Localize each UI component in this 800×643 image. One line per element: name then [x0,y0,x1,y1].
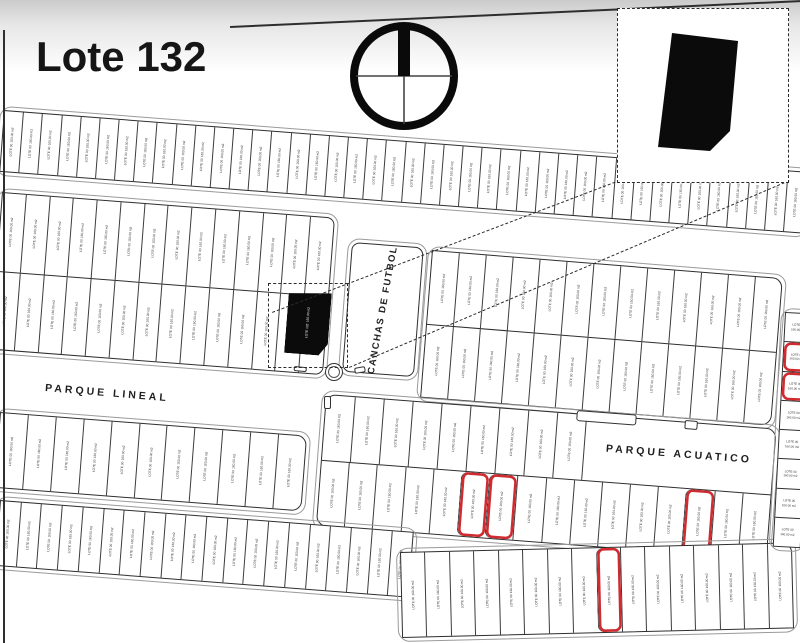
lot-number: LOTE 00 [63,457,71,470]
lot-area: 160.00 m2 [434,580,441,595]
lot-label: LOTE 00160.00 m2 [753,184,762,213]
lot-number: LOTE 00 [565,447,573,460]
lot-label: LOTE 00160.00 m2 [756,373,765,402]
lot-row: LOTE 00160.00 m2 [783,341,800,372]
lot-number: LOTE 00 [7,452,15,465]
lot-area: 160.00 m2 [695,507,703,523]
lot-area: 160.00 m2 [514,353,522,369]
lot-label: LOTE 00160.00 m2 [761,300,770,329]
lot-area: 160.00 m2 [232,537,240,553]
lot-label: LOTE 00160.00 m2 [438,274,447,303]
lot-area: 160.00 m2 [566,431,574,447]
lot-number: LOTE 00 [648,380,656,393]
lot-area: 160.00 m2 [46,522,54,538]
lot-label: LOTE 00160.00 m2 [780,527,795,537]
lot-label: LOTE 00160.00 m2 [728,572,735,601]
lot-area: 160.00 m2 [8,127,16,143]
lot-label: LOTE 00160.00 m2 [66,524,75,553]
lot-area: 160.00 m2 [557,577,564,592]
lot-area: 160.00 m2 [191,533,199,549]
lot-area: 160.00 m2 [66,131,74,147]
highlighted-lot[interactable]: LOTE 00160.00 m2 [781,371,800,401]
lot-area: 160.00 m2 [67,524,75,540]
lot-number: LOTE 00 [679,590,686,603]
lot-number: LOTE 00 [202,467,210,480]
lot-label: LOTE 00160.00 m2 [536,429,545,458]
lot-area: 160.00 m2 [574,284,582,300]
lot-label: LOTE 00160.00 m2 [128,529,137,558]
lot-number: LOTE 00 [627,305,635,318]
lot-number: LOTE 00 [676,195,684,208]
lot-label: LOTE 00160.00 m2 [390,156,399,185]
lot-number: LOTE 00 [272,556,280,569]
lot-label: LOTE 00160.00 m2 [409,158,418,187]
lot-label: LOTE 00160.00 m2 [791,323,800,333]
highlighted-lot[interactable]: LOTE 00160.00 m2 [485,473,518,539]
lot-area: 160.00 m2 [780,532,794,538]
lot-number: LOTE 00 [654,307,662,320]
lot-label: LOTE 00160.00 m2 [542,168,551,197]
lot-label: LOTE 00160.00 m2 [421,420,430,449]
lot-area: 160.00 m2 [622,362,630,378]
lot-area: 160.00 m2 [451,423,459,439]
lot-number: LOTE 00 [313,559,321,572]
lot-number: LOTE 00 [702,385,710,398]
lot-area: 160.00 m2 [682,293,690,309]
lot-number: LOTE 00 [275,164,283,177]
lot-number: LOTE 00 [459,365,467,378]
lot-label: LOTE 00160.00 m2 [621,362,630,391]
lot-area: 160.00 m2 [655,291,663,307]
lot-area: 160.00 m2 [581,576,588,591]
lot-number: LOTE 00 [519,296,527,309]
callout-rect [268,283,348,368]
lot-number: LOTE 00 [513,369,521,382]
lot-area: 160.00 m2 [253,538,261,554]
lot-label: LOTE 00160.00 m2 [702,369,711,398]
lot-number: LOTE 00 [375,564,383,577]
lot-label: LOTE 00160.00 m2 [102,225,111,254]
lot-label: LOTE 00160.00 m2 [714,181,723,210]
lot-area: 160.00 m2 [198,233,206,249]
lot-area: 160.00 m2 [470,490,478,506]
lot-area: 160.00 m2 [792,187,800,203]
parque-acuatico-label: PARQUE ACUATICO [605,443,752,466]
lot-area: 160.00 m2 [119,445,127,461]
lot-number: LOTE 00 [174,465,182,478]
lot-label: LOTE 00160.00 m2 [497,492,506,521]
parque-lineal-label: PARQUE LINEAL [44,378,169,406]
lot-area: 160.00 m2 [245,236,253,252]
lot-number: LOTE 00 [385,499,393,512]
lot-area: 160.00 m2 [498,492,506,508]
lot-number: LOTE 00 [4,535,12,548]
lot-number: LOTE 00 [96,320,104,333]
lot-number: LOTE 00 [313,167,321,180]
lot-parcel: LOTE 00160.00 m2 [766,543,792,628]
lot-label: LOTE 00160.00 m2 [96,304,105,333]
lot-number: LOTE 00 [581,514,589,527]
lot-number: LOTE 00 [143,323,151,336]
lot-area: 160.00 m2 [87,525,95,541]
lot-label: LOTE 00160.00 m2 [375,548,384,577]
lot-area: 160.00 m2 [789,357,800,363]
lot-number: LOTE 00 [469,506,477,519]
lot-area: 160.00 m2 [257,146,265,162]
highlighted-lot[interactable]: LOTE 00160.00 m2 [783,342,800,372]
lot-area: 160.00 m2 [667,505,675,521]
lot-area: 160.00 m2 [269,238,277,254]
lot-label: LOTE 00160.00 m2 [783,469,798,479]
lot-area: 160.00 m2 [371,155,379,171]
lot-number: LOTE 00 [291,256,299,269]
lot-label: LOTE 00160.00 m2 [469,490,478,519]
lot-number: LOTE 00 [410,596,417,609]
lot-parcel: LOTE 00160.00 m2 [749,277,782,351]
lot-number: LOTE 00 [329,495,337,508]
lot-label: LOTE 00160.00 m2 [149,229,158,258]
lot-area: 160.00 m2 [27,129,35,145]
lot-label: LOTE 00160.00 m2 [72,302,81,331]
lot-label: LOTE 00160.00 m2 [313,543,322,572]
lot-parcel: LOTE 00160.00 m2 [620,547,646,632]
lot-area: 160.00 m2 [126,227,134,243]
lot-parcel: LOTE 00160.00 m2 [473,551,499,636]
lot-row: LOTE 00160.00 m2 [775,487,800,518]
lot-number: LOTE 00 [638,192,646,205]
lot-parcel: LOTE 00160.00 m2 [571,548,597,633]
lot-area: 160.00 m2 [335,545,343,561]
lot-area: 160.00 m2 [785,444,799,450]
lot-label: LOTE 00160.00 m2 [627,289,636,318]
lot-area: 160.00 m2 [414,485,422,501]
lot-number: LOTE 00 [357,497,365,510]
lot-number: LOTE 00 [523,183,531,196]
lot-area: 160.00 m2 [783,474,797,480]
lot-number: LOTE 00 [761,316,769,329]
lot-label: LOTE 00160.00 m2 [355,546,364,575]
lot-area: 160.00 m2 [314,151,322,167]
lot-label: LOTE 00160.00 m2 [540,356,549,385]
lot-label: LOTE 00160.00 m2 [332,152,341,181]
lot-label: LOTE 00160.00 m2 [428,159,437,188]
lot-number: LOTE 00 [45,538,53,551]
lot-number: LOTE 00 [363,432,371,445]
lot-parcel: LOTE 00160.00 m2 [784,313,800,343]
lot-area: 160.00 m2 [315,543,323,559]
lot-label: LOTE 00160.00 m2 [252,538,261,567]
lot-area: 160.00 m2 [175,449,183,465]
lot-area: 160.00 m2 [391,156,399,172]
lot-number: LOTE 00 [708,311,716,324]
lot-number: LOTE 00 [750,527,758,540]
lot-area: 160.00 m2 [170,532,178,548]
lot-label: LOTE 00160.00 m2 [7,218,16,247]
lot-label: LOTE 00160.00 m2 [594,360,603,389]
lot-number: LOTE 00 [294,165,302,178]
lot-area: 160.00 m2 [791,327,800,333]
lot-number: LOTE 00 [655,590,662,603]
lot-label: LOTE 00160.00 m2 [508,578,515,607]
lot-label: LOTE 00160.00 m2 [238,314,247,343]
lot-label: LOTE 00160.00 m2 [45,130,54,159]
lot-parcel: LOTE 00160.00 m2 [743,350,776,424]
lot-area: 160.00 m2 [493,278,501,294]
lot-label: LOTE 00160.00 m2 [107,527,116,556]
lot-number: LOTE 00 [66,540,74,553]
lot-area: 160.00 m2 [203,451,211,467]
lot-label: LOTE 00160.00 m2 [777,571,784,600]
lot-label: LOTE 00160.00 m2 [237,145,246,174]
lot-parcel: LOTE 00160.00 m2 [498,550,524,635]
lot-area: 160.00 m2 [180,140,188,156]
lot-number: LOTE 00 [230,470,238,483]
lot-label: LOTE 00160.00 m2 [433,347,442,376]
lot-number: LOTE 00 [735,313,743,326]
lot-label: LOTE 00160.00 m2 [441,488,450,517]
lot-number: LOTE 00 [533,593,540,606]
lot-label: LOTE 00160.00 m2 [54,222,63,251]
lot-number: LOTE 00 [600,303,608,316]
lot-number: LOTE 00 [7,234,15,247]
lot-area: 160.00 m2 [376,548,384,564]
lot-number: LOTE 00 [107,543,115,556]
lot-number: LOTE 00 [231,553,239,566]
lot-number: LOTE 00 [704,589,711,602]
lot-label: LOTE 00160.00 m2 [24,521,33,550]
lot-label: LOTE 00160.00 m2 [148,530,157,559]
lot-area: 160.00 m2 [649,364,657,380]
lot-label: LOTE 00160.00 m2 [734,183,743,212]
lot-label: LOTE 00160.00 m2 [191,311,200,340]
lot-number: LOTE 00 [293,557,301,570]
lot-number: LOTE 00 [190,549,198,562]
lot-label: LOTE 00160.00 m2 [143,307,152,336]
lot-number: LOTE 00 [421,436,429,449]
lot-area: 160.00 m2 [85,133,93,149]
lot-number: LOTE 00 [573,300,581,313]
lot-number: LOTE 00 [252,554,260,567]
lot-area: 160.00 m2 [161,139,169,155]
lot-area: 160.00 m2 [486,164,494,180]
lot-number: LOTE 00 [553,512,561,525]
lot-number: LOTE 00 [557,593,564,606]
lot-number: LOTE 00 [315,258,323,271]
plat-map-sheet: Lote 132 LOTE 00160.00 m2LOTE 00160.00 m… [0,0,800,643]
lot-number: LOTE 00 [118,461,126,474]
lot-area: 160.00 m2 [364,416,372,432]
lot-number: LOTE 00 [122,152,130,165]
lot-number: LOTE 00 [84,149,92,162]
lot-area: 160.00 m2 [73,302,81,318]
lot-parcel: LOTE 00160.00 m2 [775,488,800,518]
lot-area: 160.00 m2 [97,304,105,320]
lot-label: LOTE 00160.00 m2 [525,494,534,523]
lot-number: LOTE 00 [479,441,487,454]
lot-label: LOTE 00160.00 m2 [648,364,657,393]
lot-area: 160.00 m2 [47,130,55,146]
lot-label: LOTE 00160.00 m2 [459,349,468,378]
lot-parcel: LOTE 00160.00 m2 [669,546,695,631]
lot-area: 160.00 m2 [149,530,157,546]
lot-label: LOTE 00160.00 m2 [752,572,759,601]
lot-area: 160.00 m2 [544,168,552,184]
lot-label: LOTE 00160.00 m2 [485,164,494,193]
lot-area: 160.00 m2 [147,447,155,463]
lot-label: LOTE 00160.00 m2 [504,165,513,194]
lot-label: LOTE 00160.00 m2 [750,511,759,540]
lot-row: LOTE 00160.00 m2 [778,429,800,460]
lot-label: LOTE 00160.00 m2 [581,498,590,527]
lot-area: 160.00 m2 [64,441,72,457]
lot-row: LOTE 00160.00 m2 [781,370,800,401]
lot-number: LOTE 00 [149,245,157,258]
canchas-futbol-parcel: CANCHAS DE FUTBOL [342,242,424,377]
block-band-b-right: LOTE 00160.00 m2LOTE 00160.00 m2LOTE 001… [420,250,783,426]
lot-label: LOTE 00160.00 m2 [197,233,206,262]
lot-area: 160.00 m2 [410,158,418,174]
lot-label: LOTE 00160.00 m2 [447,161,456,190]
lot-area: 160.00 m2 [231,453,239,469]
lot-label: LOTE 00160.00 m2 [329,479,338,508]
lot-label: LOTE 00160.00 m2 [363,416,372,445]
lot-area: 160.00 m2 [295,149,303,165]
lot-label: LOTE 00160.00 m2 [45,522,54,551]
lot-label: LOTE 00160.00 m2 [546,282,555,311]
lot-area: 160.00 m2 [129,529,137,545]
lot-area: 160.00 m2 [36,439,44,455]
lot-number: LOTE 00 [244,252,252,265]
lot-number: LOTE 00 [619,190,627,203]
lot-label: LOTE 00160.00 m2 [190,533,199,562]
lot-number: LOTE 00 [392,434,400,447]
lot-area: 160.00 m2 [480,425,488,441]
lot-number: LOTE 00 [237,161,245,174]
lot-area: 160.00 m2 [294,541,302,557]
lot-label: LOTE 00160.00 m2 [610,501,619,530]
lot-number: LOTE 00 [600,189,608,202]
lot-number: LOTE 00 [78,239,86,252]
lot-label: LOTE 00160.00 m2 [118,445,127,474]
lot-label: LOTE 00160.00 m2 [173,231,182,260]
lot-area: 160.00 m2 [537,429,545,445]
lot-label: LOTE 00160.00 m2 [7,127,16,156]
lot-number: LOTE 00 [72,318,80,331]
lot-number: LOTE 00 [257,472,265,485]
lot-area: 160.00 m2 [55,222,63,238]
lot-number: LOTE 00 [657,193,665,206]
lot-area: 160.00 m2 [422,420,430,436]
lot-area: 160.00 m2 [221,234,229,250]
lot-area: 160.00 m2 [108,527,116,543]
lot-label: LOTE 00160.00 m2 [370,155,379,184]
lot-number: LOTE 00 [334,561,342,574]
lot-label: LOTE 00160.00 m2 [257,456,266,485]
lot-area: 160.00 m2 [466,276,474,292]
lot-number: LOTE 00 [285,474,293,487]
lot-number: LOTE 00 [54,238,62,251]
lot-area: 160.00 m2 [199,142,207,158]
lot-label: LOTE 00160.00 m2 [581,171,590,200]
lot-number: LOTE 00 [119,321,127,334]
lot-label: LOTE 00160.00 m2 [654,574,661,603]
lot-number: LOTE 00 [214,329,222,342]
lot-area: 160.00 m2 [547,282,555,298]
highlighted-lot[interactable]: LOTE 00160.00 m2 [595,548,621,633]
lot-area: 160.00 m2 [429,159,437,175]
lot-number: LOTE 00 [459,595,466,608]
lot-number: LOTE 00 [169,548,177,561]
lot-label: LOTE 00160.00 m2 [84,133,93,162]
lot-area: 160.00 m2 [782,503,796,509]
lot-number: LOTE 00 [606,591,613,604]
lot-number: LOTE 00 [486,367,494,380]
lot-label: LOTE 00160.00 m2 [202,451,211,480]
lot-label: LOTE 00160.00 m2 [385,483,394,512]
parque-lineal-text: PARQUE LINEAL [45,382,170,404]
lot-label: LOTE 00160.00 m2 [244,236,253,265]
lot-parcel: LOTE 00160.00 m2 [401,552,426,637]
lot-number: LOTE 00 [179,156,187,169]
lot-label: LOTE 00160.00 m2 [729,371,738,400]
lot-number: LOTE 00 [45,146,53,159]
lot-label: LOTE 00160.00 m2 [169,532,178,561]
lot-area: 160.00 m2 [358,481,366,497]
lot-number: LOTE 00 [210,551,218,564]
lot-area: 160.00 m2 [333,152,341,168]
lot-label: LOTE 00160.00 m2 [315,242,324,271]
lot-area: 160.00 m2 [174,231,182,247]
lot-area: 160.00 m2 [239,314,247,330]
lot-label: LOTE 00160.00 m2 [86,525,95,554]
lot-label: LOTE 00160.00 m2 [695,180,704,209]
boundary-notch [684,420,698,430]
lot-number: LOTE 00 [256,162,264,175]
lot-label: LOTE 00160.00 m2 [146,447,155,476]
lot-label: LOTE 00160.00 m2 [708,295,717,324]
lot-area: 160.00 m2 [703,369,711,385]
lot-label: LOTE 00160.00 m2 [553,496,562,525]
lot-parcel: LOTE 00160.00 m2 [644,546,670,631]
lot-label: LOTE 00160.00 m2 [479,425,488,454]
lot-number: LOTE 00 [752,588,759,601]
lot-number: LOTE 00 [675,382,683,395]
lot-area: 160.00 m2 [526,494,534,510]
lot-area: 160.00 m2 [211,535,219,551]
lot-label: LOTE 00160.00 m2 [654,291,663,320]
lot-area: 160.00 m2 [316,242,324,258]
lot-area: 160.00 m2 [123,136,131,152]
lot-number: LOTE 00 [728,588,735,601]
lot-parcel: LOTE 00160.00 m2 [424,552,450,637]
lot-area: 160.00 m2 [150,229,158,245]
lot-label: LOTE 00160.00 m2 [230,453,239,482]
lot-label: LOTE 00160.00 m2 [459,579,466,608]
lot-area: 160.00 m2 [215,313,223,329]
lot-area: 160.00 m2 [605,575,612,590]
lot-area: 160.00 m2 [467,162,475,178]
lot-number: LOTE 00 [26,145,34,158]
lot-label: LOTE 00160.00 m2 [638,503,647,532]
lot-area: 160.00 m2 [410,580,417,595]
lot-parcel: LOTE 00160.00 m2 [780,401,800,431]
lot-label: LOTE 00160.00 m2 [666,505,675,534]
lot-area: 160.00 m2 [120,305,128,321]
lot-label: LOTE 00160.00 m2 [275,148,284,177]
lot-area: 160.00 m2 [352,154,360,170]
lot-number: LOTE 00 [7,143,15,156]
lot-number: LOTE 00 [504,181,512,194]
